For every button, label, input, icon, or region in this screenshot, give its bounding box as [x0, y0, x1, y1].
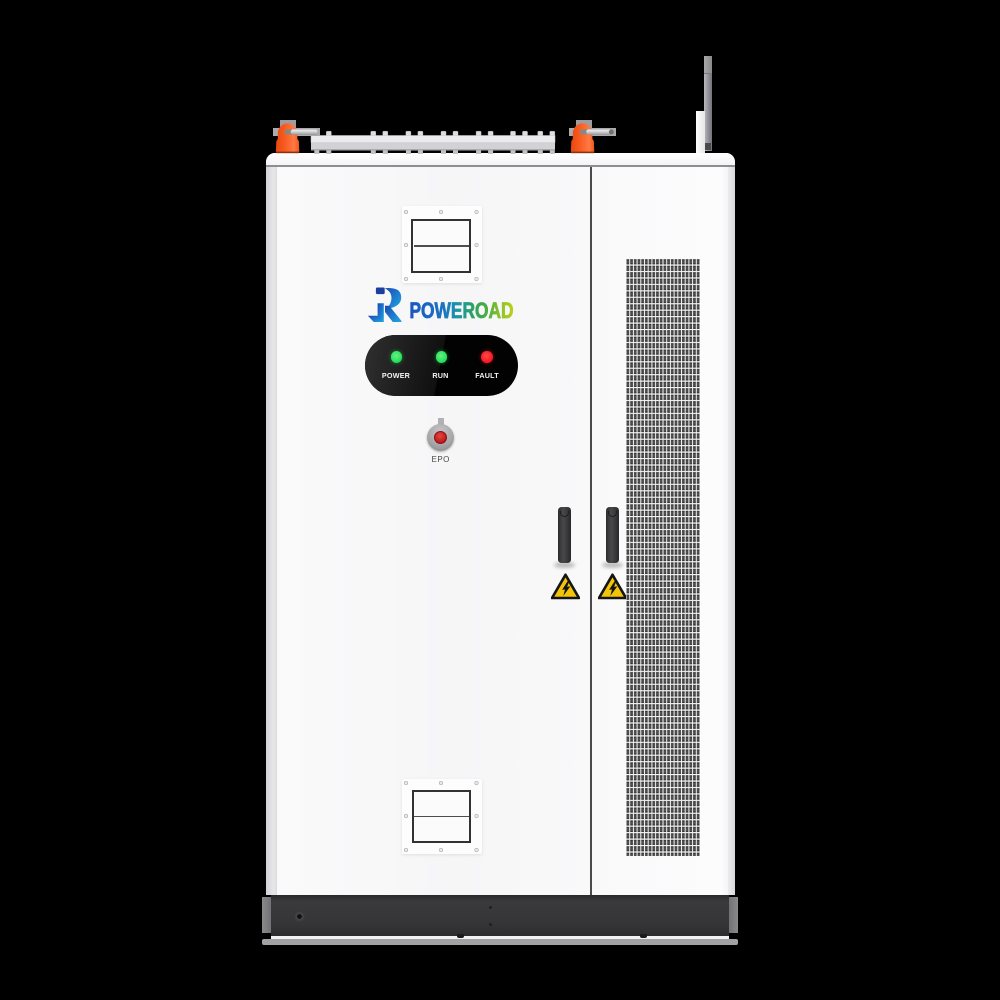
svg-text:POWEROAD: POWEROAD: [410, 298, 514, 323]
